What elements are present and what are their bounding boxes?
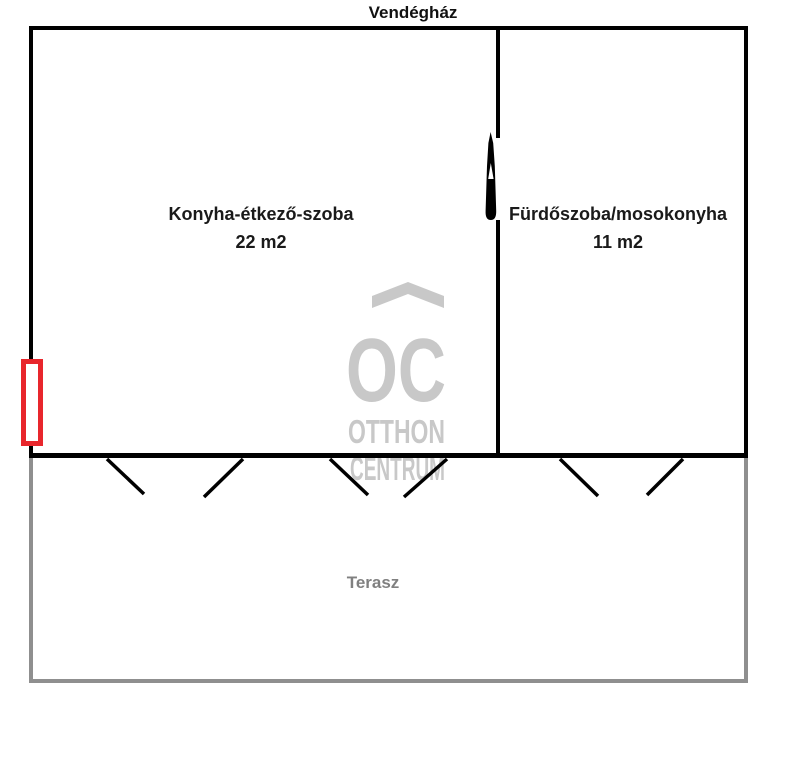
terrace-outline xyxy=(29,458,748,683)
terrace-label: Terasz xyxy=(347,573,400,593)
plan-title: Vendégház xyxy=(369,3,458,23)
door-symbol xyxy=(482,131,502,226)
floorplan-canvas: Vendégház Konyha-étkező-szoba 22 m2 Fürd… xyxy=(0,0,800,758)
window-marker xyxy=(21,359,43,446)
room-name: Konyha-étkező-szoba xyxy=(168,200,353,228)
room-area: 11 m2 xyxy=(509,228,727,256)
partition-wall-lower xyxy=(496,220,500,458)
room-area: 22 m2 xyxy=(168,228,353,256)
room-name: Fürdőszoba/mosokonyha xyxy=(509,200,727,228)
partition-wall-upper xyxy=(496,28,500,138)
room-label-bathroom: Fürdőszoba/mosokonyha 11 m2 xyxy=(509,200,727,256)
room-label-kitchen: Konyha-étkező-szoba 22 m2 xyxy=(168,200,353,256)
